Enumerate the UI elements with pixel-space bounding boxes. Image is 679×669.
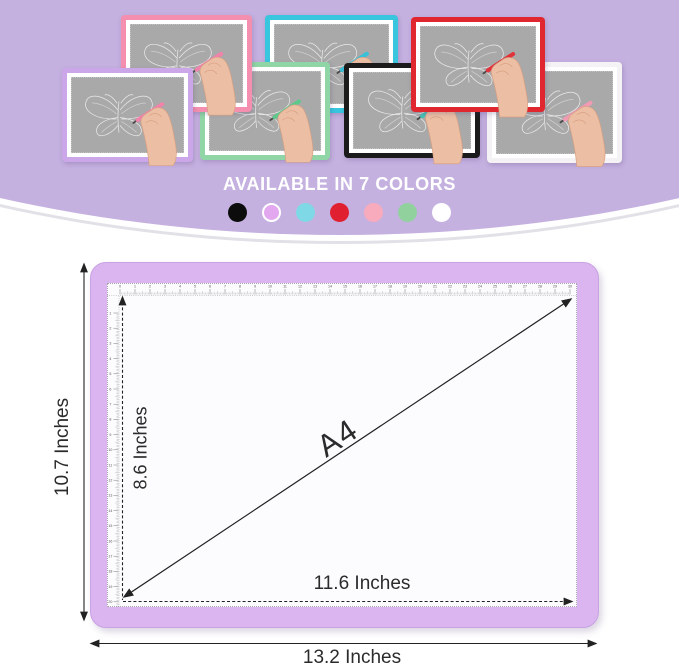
svg-text:6: 6 [109,387,111,391]
swatch-pink [364,203,383,222]
svg-text:10: 10 [268,285,272,289]
outer-height-label: 10.7 Inches [52,398,74,496]
hand-with-pen-icon [188,39,246,119]
svg-text:12: 12 [298,285,302,289]
svg-text:3: 3 [109,342,111,346]
svg-text:16: 16 [358,285,362,289]
svg-text:20: 20 [418,285,422,289]
header-section: AVAILABLE IN 7 COLORS [0,0,679,250]
svg-text:4: 4 [109,357,111,361]
svg-text:5: 5 [109,372,111,376]
svg-text:2: 2 [149,285,151,289]
swatch-red [330,203,349,222]
color-pad-purple [62,68,193,162]
svg-text:25: 25 [493,285,497,289]
svg-text:6: 6 [209,285,211,289]
svg-text:8: 8 [109,418,111,422]
inner-height-label: 8.6 Inches [131,406,152,489]
product-image: { "header": { "title": "AVAILABLE IN 7 C… [0,0,679,665]
color-pad-red [411,17,545,112]
svg-text:28: 28 [538,285,542,289]
svg-text:14: 14 [328,285,332,289]
svg-text:1: 1 [134,285,136,289]
hand-with-pen-icon [479,41,538,119]
svg-text:11: 11 [283,285,287,289]
inner-width-label: 11.6 Inches [314,573,411,595]
ruler-left: 1234567891011121314151617181920 [107,296,119,607]
svg-text:20: 20 [108,600,112,604]
hand-with-pen-icon [129,91,187,168]
svg-text:3: 3 [164,285,166,289]
svg-text:0: 0 [119,285,121,289]
svg-text:15: 15 [108,524,112,528]
svg-text:10: 10 [108,448,112,452]
ruler-top: 0123456789101112131415161718192021222324… [107,283,577,296]
svg-text:5: 5 [194,285,196,289]
outer-width-label: 13.2 Inches [303,647,401,669]
svg-text:9: 9 [109,433,111,437]
svg-text:2: 2 [109,327,111,331]
swatch-violet [262,203,281,222]
available-colors-title: AVAILABLE IN 7 COLORS [0,174,679,195]
svg-text:19: 19 [403,285,407,289]
svg-text:17: 17 [373,285,377,289]
svg-text:15: 15 [343,285,347,289]
svg-text:18: 18 [388,285,392,289]
svg-text:8: 8 [239,285,241,289]
swatch-white [432,203,451,222]
svg-text:17: 17 [108,555,112,559]
svg-text:13: 13 [313,285,317,289]
swatch-black [228,203,247,222]
svg-text:29: 29 [553,285,557,289]
swatch-blue [296,203,315,222]
svg-text:9: 9 [254,285,256,289]
hand-with-pen-icon [556,87,616,171]
color-swatch-row [0,203,679,222]
svg-text:14: 14 [108,509,112,513]
swatch-green [398,203,417,222]
svg-text:13: 13 [108,494,112,498]
dimension-diagram: 0123456789101112131415161718192021222324… [0,250,679,665]
svg-text:24: 24 [478,285,482,289]
hand-with-pen-icon [266,86,323,167]
svg-text:19: 19 [108,585,112,589]
svg-text:7: 7 [224,285,226,289]
svg-text:21: 21 [433,285,437,289]
svg-text:23: 23 [463,285,467,289]
svg-text:16: 16 [108,539,112,543]
svg-text:26: 26 [508,285,512,289]
svg-text:27: 27 [523,285,527,289]
svg-text:30: 30 [568,285,572,289]
svg-text:22: 22 [448,285,452,289]
svg-text:7: 7 [109,403,111,407]
svg-text:1: 1 [109,311,111,315]
svg-text:12: 12 [108,479,112,483]
svg-text:18: 18 [108,570,112,574]
svg-text:11: 11 [109,463,113,467]
svg-text:4: 4 [179,285,181,289]
